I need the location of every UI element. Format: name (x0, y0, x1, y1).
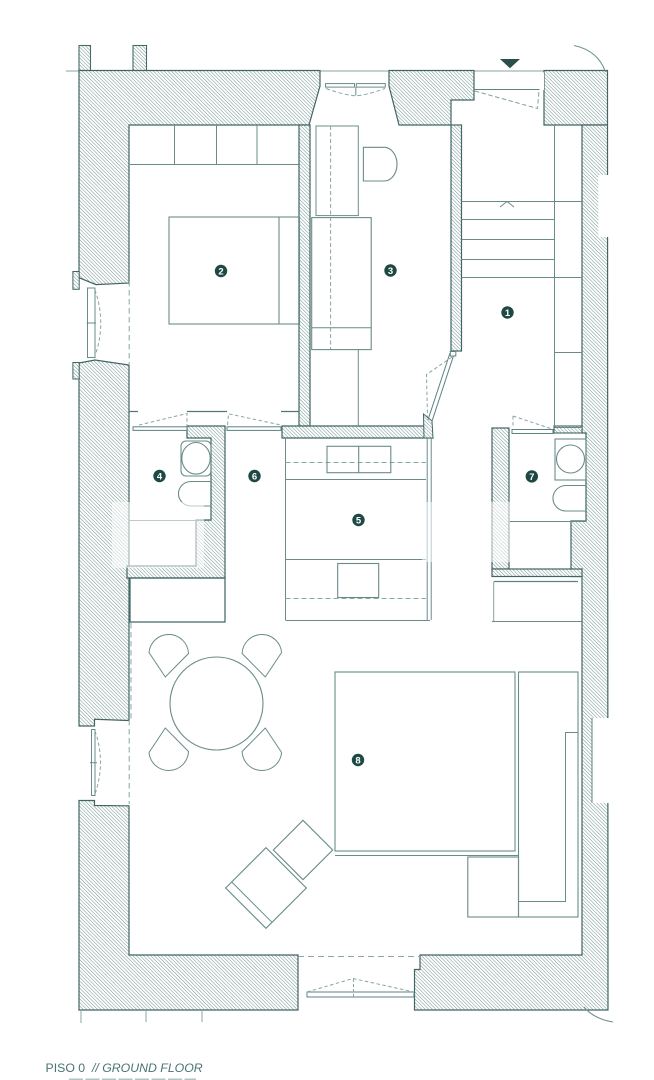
svg-text:5: 5 (356, 516, 362, 527)
svg-text:2: 2 (218, 267, 223, 278)
svg-text:1: 1 (505, 308, 511, 319)
svg-text:3: 3 (388, 266, 393, 277)
svg-text:8: 8 (355, 756, 360, 767)
svg-text:4: 4 (157, 472, 163, 483)
svg-text:6: 6 (252, 472, 257, 483)
svg-text:7: 7 (529, 472, 534, 483)
